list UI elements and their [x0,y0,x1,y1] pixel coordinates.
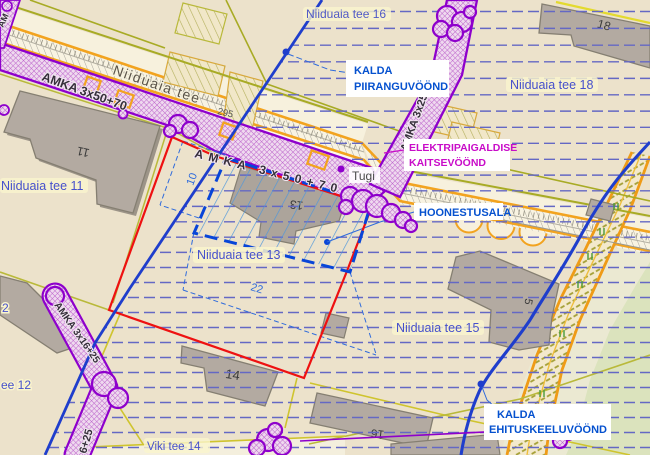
svg-text:Viki tee 14: Viki tee 14 [147,441,201,453]
svg-text:Niiduaia tee 18: Niiduaia tee 18 [510,78,593,92]
svg-text:2: 2 [2,301,9,315]
svg-text:16: 16 [370,426,385,442]
svg-text:Tugi: Tugi [352,169,375,183]
svg-text:EHITUSKEELUVÖÖND: EHITUSKEELUVÖÖND [489,423,607,436]
svg-text:Niiduaia tee 16: Niiduaia tee 16 [306,7,386,21]
svg-text:14: 14 [224,366,241,383]
svg-text:PIIRANGUVÖÖND: PIIRANGUVÖÖND [354,80,448,93]
svg-text:KAITSEVÖÖND: KAITSEVÖÖND [409,156,486,169]
svg-text:HOONESTUSALA: HOONESTUSALA [419,207,511,219]
svg-text:ELEKTRIPAIGALDISE: ELEKTRIPAIGALDISE [409,142,517,154]
svg-text:Niiduaia tee 11: Niiduaia tee 11 [1,179,84,193]
svg-text:KALDA: KALDA [497,409,536,421]
svg-text:Niiduaia tee 15: Niiduaia tee 15 [396,321,479,335]
svg-text:ee 12: ee 12 [1,378,31,392]
svg-text:Niiduaia tee 13: Niiduaia tee 13 [197,248,280,262]
svg-text:KALDA: KALDA [354,65,393,77]
